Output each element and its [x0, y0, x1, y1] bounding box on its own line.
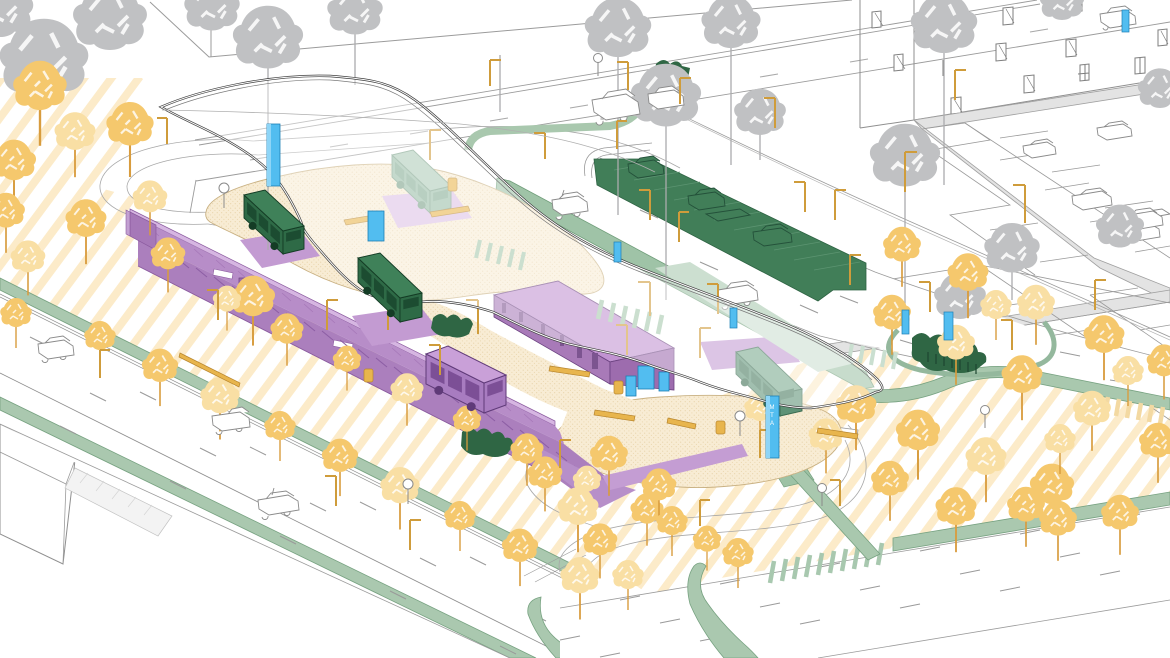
svg-text:M: M	[770, 405, 775, 411]
svg-text:A: A	[770, 421, 774, 427]
svg-text:T: T	[770, 413, 774, 419]
